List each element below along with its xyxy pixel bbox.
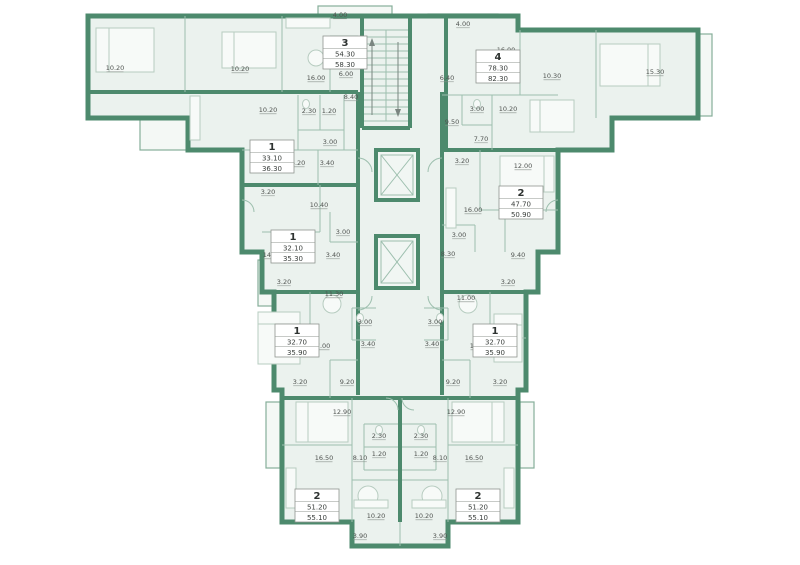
apartment-area-total: 82.30 — [488, 75, 508, 83]
apartment-area-living: 78.30 — [488, 65, 508, 73]
apartment-number: 4 — [495, 52, 502, 63]
room-dimension-label: 3.00 — [470, 105, 484, 113]
svg-text:9.20: 9.20 — [340, 378, 354, 386]
svg-text:15.30: 15.30 — [646, 68, 665, 76]
room-dimension-label: 3.40 — [326, 251, 340, 259]
room-dimension-label: 3.00 — [336, 228, 350, 236]
room-dimension-label: 10.20 — [259, 106, 278, 114]
floor-plan-canvas: 4.004.0010.2010.2016.006.008.4016.0015.3… — [0, 0, 800, 565]
svg-text:8.10: 8.10 — [353, 454, 367, 462]
svg-text:16.00: 16.00 — [464, 206, 483, 214]
svg-text:10.30: 10.30 — [543, 72, 562, 80]
svg-text:10.20: 10.20 — [259, 106, 278, 114]
apartment-area-total: 35.30 — [283, 255, 303, 263]
apartment-area-living: 47.70 — [511, 201, 531, 209]
apartment-stamp: 251.2055.10 — [456, 489, 500, 522]
bed — [600, 44, 660, 86]
svg-text:6.00: 6.00 — [339, 70, 353, 78]
svg-text:1.20: 1.20 — [372, 450, 386, 458]
apartment-area-total: 36.30 — [262, 165, 282, 173]
room-dimension-label: 1.20 — [322, 107, 336, 115]
svg-text:3.00: 3.00 — [358, 318, 372, 326]
room-dimension-label: 12.90 — [333, 408, 352, 416]
svg-text:3.20: 3.20 — [501, 278, 515, 286]
svg-text:3.20: 3.20 — [261, 188, 275, 196]
room-dimension-label: 16.00 — [464, 206, 483, 214]
room-dimension-label: 9.40 — [511, 251, 525, 259]
svg-text:3.00: 3.00 — [470, 105, 484, 113]
apartment-stamp: 132.7035.90 — [473, 324, 517, 357]
room-dimension-label: 8.10 — [353, 454, 367, 462]
room-dimension-label: 11.00 — [457, 294, 476, 302]
room-dimension-label: 2.30 — [302, 107, 316, 115]
apartment-area-living: 32.10 — [283, 245, 303, 253]
svg-text:1.20: 1.20 — [414, 450, 428, 458]
svg-text:10.20: 10.20 — [499, 105, 518, 113]
apartment-stamp: 132.1035.30 — [271, 230, 315, 263]
apartment-area-living: 54.30 — [335, 51, 355, 59]
room-dimension-label: 1.20 — [414, 450, 428, 458]
apartment-area-living: 32.70 — [287, 339, 307, 347]
bed — [222, 32, 276, 68]
room-dimension-label: 10.40 — [310, 201, 329, 209]
room-dimension-label: 10.30 — [543, 72, 562, 80]
svg-text:16.00: 16.00 — [307, 74, 326, 82]
room-dimension-label: 3.00 — [358, 318, 372, 326]
svg-text:4.00: 4.00 — [456, 20, 470, 28]
apartment-number: 2 — [518, 188, 525, 199]
apartment-number: 2 — [475, 491, 482, 502]
room-dimension-label: 3.00 — [428, 318, 442, 326]
room-dimension-label: 16.50 — [315, 454, 334, 462]
room-dimension-label: 10.20 — [367, 512, 386, 520]
floor-plan-page: 4.004.0010.2010.2016.006.008.4016.0015.3… — [0, 0, 800, 565]
apartment-number: 2 — [314, 491, 321, 502]
apartment-area-total: 35.90 — [485, 349, 505, 357]
room-dimension-label: 3.20 — [261, 188, 275, 196]
balcony-bottom-left — [266, 402, 280, 468]
svg-text:3.20: 3.20 — [455, 157, 469, 165]
apartment-area-living: 32.70 — [485, 339, 505, 347]
room-dimension-label: 16.50 — [465, 454, 484, 462]
room-dimension-label: 8.40 — [344, 93, 358, 101]
svg-text:12.90: 12.90 — [447, 408, 466, 416]
room-dimension-label: 10.20 — [415, 512, 434, 520]
svg-text:7.70: 7.70 — [474, 135, 488, 143]
room-dimension-label: 3.40 — [425, 340, 439, 348]
svg-text:9.40: 9.40 — [511, 251, 525, 259]
apartment-area-total: 55.10 — [468, 514, 488, 522]
room-dimension-label: 9.50 — [445, 118, 459, 126]
svg-text:16.50: 16.50 — [465, 454, 484, 462]
svg-text:8.10: 8.10 — [433, 454, 447, 462]
svg-text:9.20: 9.20 — [446, 378, 460, 386]
room-dimension-label: 3.90 — [433, 532, 447, 540]
svg-text:9.50: 9.50 — [445, 118, 459, 126]
room-dimension-label: 3.20 — [293, 378, 307, 386]
svg-text:2.30: 2.30 — [414, 432, 428, 440]
room-dimension-label: 2.30 — [372, 432, 386, 440]
svg-text:3.20: 3.20 — [277, 278, 291, 286]
room-dimension-label: 10.20 — [499, 105, 518, 113]
apartment-area-total: 35.90 — [287, 349, 307, 357]
room-dimension-label: 1.20 — [372, 450, 386, 458]
room-dimension-label: 12.00 — [514, 162, 533, 170]
svg-text:16.50: 16.50 — [315, 454, 334, 462]
svg-text:3.00: 3.00 — [452, 231, 466, 239]
svg-text:3.40: 3.40 — [326, 251, 340, 259]
svg-text:3.90: 3.90 — [433, 532, 447, 540]
room-dimension-label: 11.30 — [325, 290, 344, 298]
svg-text:4.00: 4.00 — [333, 11, 347, 19]
room-dimension-label: 6.40 — [440, 74, 454, 82]
room-dimension-label: 6.00 — [339, 70, 353, 78]
svg-text:10.20: 10.20 — [367, 512, 386, 520]
room-dimension-label: 9.20 — [446, 378, 460, 386]
balcony-bottom-right — [520, 402, 534, 468]
apartment-area-living: 51.20 — [468, 504, 488, 512]
room-dimension-label: 4.00 — [333, 11, 347, 19]
room-dimension-label: 3.40 — [361, 340, 375, 348]
room-dimension-label: 3.20 — [501, 278, 515, 286]
apartment-area-total: 58.30 — [335, 61, 355, 69]
apartment-number: 1 — [269, 142, 276, 153]
apartment-area-living: 51.20 — [307, 504, 327, 512]
bed — [96, 28, 154, 72]
room-dimension-label: 3.20 — [455, 157, 469, 165]
svg-text:6.40: 6.40 — [440, 74, 454, 82]
bed — [530, 100, 574, 132]
svg-text:3.90: 3.90 — [353, 532, 367, 540]
room-dimension-label: 12.90 — [447, 408, 466, 416]
room-dimension-label: 3.00 — [452, 231, 466, 239]
apartment-stamp: 133.1036.30 — [250, 140, 294, 173]
svg-text:11.00: 11.00 — [457, 294, 476, 302]
svg-text:8.40: 8.40 — [344, 93, 358, 101]
svg-text:10.20: 10.20 — [415, 512, 434, 520]
room-dimension-label: 3.40 — [320, 159, 334, 167]
svg-text:3.40: 3.40 — [320, 159, 334, 167]
svg-text:2.30: 2.30 — [372, 432, 386, 440]
apartment-number: 1 — [290, 232, 297, 243]
apartment-area-total: 55.10 — [307, 514, 327, 522]
apartment-stamp: 132.7035.90 — [275, 324, 319, 357]
svg-text:10.40: 10.40 — [310, 201, 329, 209]
room-dimension-label: 9.20 — [340, 378, 354, 386]
room-dimension-label: 10.20 — [106, 64, 125, 72]
room-dimension-label: 3.90 — [353, 532, 367, 540]
apartment-number: 1 — [492, 326, 499, 337]
svg-text:10.20: 10.20 — [231, 65, 250, 73]
apartment-stamp: 478.3082.30 — [476, 50, 520, 83]
svg-text:3.20: 3.20 — [293, 378, 307, 386]
room-dimension-label: 2.30 — [414, 432, 428, 440]
apartment-stamp: 354.3058.30 — [323, 36, 367, 69]
room-dimension-label: 3.00 — [323, 138, 337, 146]
svg-text:3.40: 3.40 — [361, 340, 375, 348]
room-dimension-label: 3.20 — [493, 378, 507, 386]
svg-text:1.20: 1.20 — [322, 107, 336, 115]
apartment-stamp: 251.2055.10 — [295, 489, 339, 522]
apartment-number: 3 — [342, 38, 349, 49]
svg-text:3.00: 3.00 — [323, 138, 337, 146]
room-dimension-label: 15.30 — [646, 68, 665, 76]
room-dimension-label: 8.30 — [441, 250, 455, 258]
svg-text:12.90: 12.90 — [333, 408, 352, 416]
room-dimension-label: 10.20 — [231, 65, 250, 73]
room-dimension-label: 16.00 — [307, 74, 326, 82]
apartment-stamp: 247.7050.90 — [499, 186, 543, 219]
svg-text:3.00: 3.00 — [336, 228, 350, 236]
room-dimension-label: 4.00 — [456, 20, 470, 28]
svg-text:3.20: 3.20 — [493, 378, 507, 386]
svg-text:3.40: 3.40 — [425, 340, 439, 348]
svg-text:11.30: 11.30 — [325, 290, 344, 298]
room-dimension-label: 7.70 — [474, 135, 488, 143]
svg-text:10.20: 10.20 — [106, 64, 125, 72]
room-dimension-label: 3.20 — [277, 278, 291, 286]
apartment-number: 1 — [294, 326, 301, 337]
apartment-area-total: 50.90 — [511, 211, 531, 219]
svg-text:8.30: 8.30 — [441, 250, 455, 258]
svg-text:3.00: 3.00 — [428, 318, 442, 326]
svg-text:2.30: 2.30 — [302, 107, 316, 115]
svg-text:12.00: 12.00 — [514, 162, 533, 170]
apartment-area-living: 33.10 — [262, 155, 282, 163]
room-dimension-label: 8.10 — [433, 454, 447, 462]
